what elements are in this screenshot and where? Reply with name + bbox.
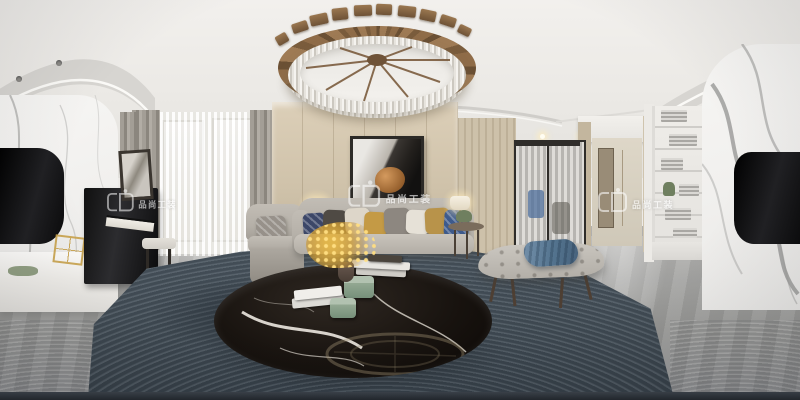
blue-drape-behind-glass — [528, 190, 544, 218]
glass-partition — [514, 140, 586, 256]
watermark-text: 品尚工装 — [386, 191, 432, 205]
watermark-logo — [107, 193, 134, 215]
hallway-door — [598, 148, 614, 228]
watermark-text: 品尚工装 — [138, 198, 177, 210]
watermark-text: 品尚工装 — [632, 198, 674, 211]
tv-left — [0, 148, 64, 244]
watermark: 品尚工装 — [107, 193, 177, 215]
bookshelf-base-cabinet — [652, 242, 704, 260]
floor-ripple-right — [670, 320, 800, 400]
potted-plant — [456, 210, 472, 222]
book-stack — [661, 110, 687, 122]
table-leg — [477, 230, 479, 256]
green-box-small — [330, 298, 356, 318]
partition-divider — [547, 142, 549, 250]
watermark-logo — [348, 185, 380, 211]
book-stack — [669, 134, 697, 146]
book-stack — [673, 228, 697, 238]
watermark-logo — [598, 192, 627, 216]
furniture-silhouette — [552, 202, 570, 234]
chandelier-spokes — [300, 44, 454, 102]
table-lamp-right — [450, 196, 470, 210]
chandelier-wood-block — [354, 5, 372, 17]
book-stack — [679, 184, 699, 196]
chandelier-wood-block — [376, 4, 392, 16]
recessed-light — [540, 134, 545, 139]
piano-bench — [142, 238, 176, 249]
table-leg — [454, 230, 456, 256]
yellow-flowers — [306, 222, 376, 268]
panorama-photo: 品尚工装 品尚工装 品尚工装 — [0, 0, 800, 400]
watermark: 品尚工装 — [598, 192, 674, 216]
green-dish-decor — [8, 266, 38, 276]
book-stack — [661, 158, 683, 170]
recessed-light — [56, 60, 62, 66]
nadir-strip — [0, 392, 800, 400]
chandelier-wood-block — [331, 7, 348, 21]
gold-wire-decor — [52, 234, 85, 265]
watermark: 品尚工装 — [348, 185, 432, 211]
chandelier-wood-block — [397, 5, 416, 18]
table-leg — [466, 231, 468, 259]
partition-top-rail — [516, 142, 580, 146]
recessed-light — [16, 76, 22, 82]
blue-blanket — [523, 238, 579, 268]
tv-right — [734, 152, 800, 244]
